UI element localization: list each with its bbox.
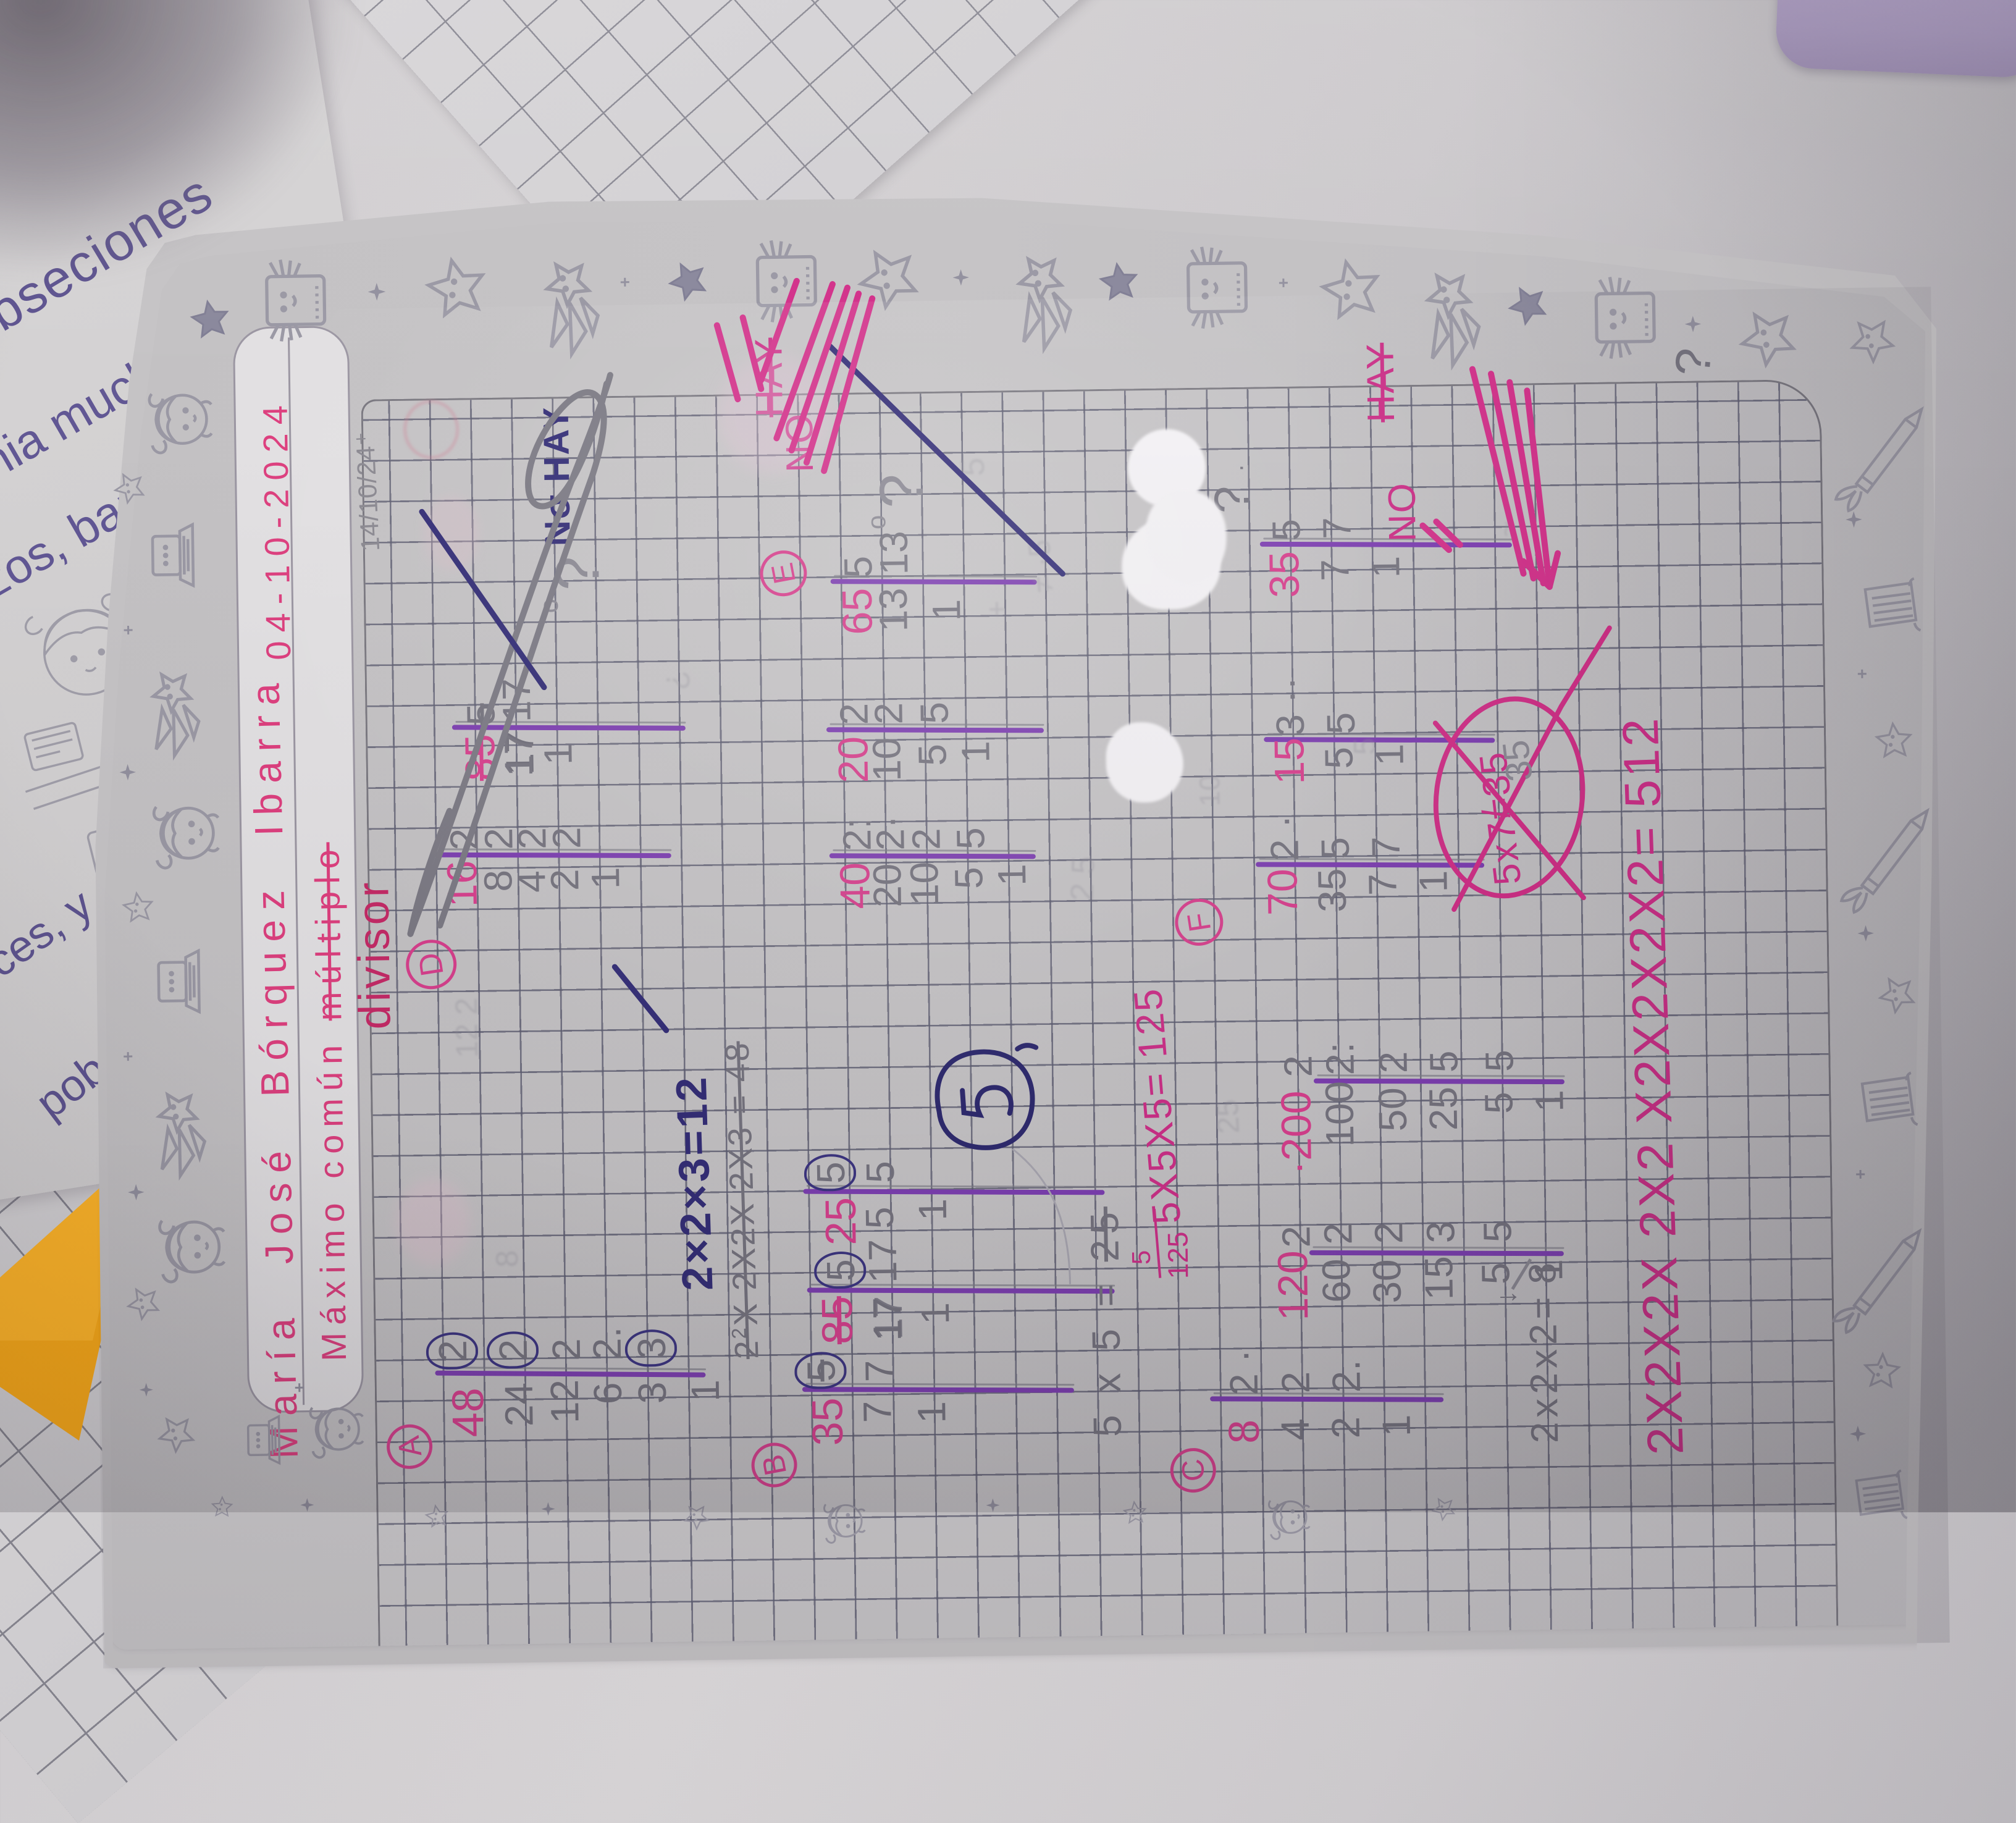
svg-text:35: 35 xyxy=(1495,738,1540,783)
